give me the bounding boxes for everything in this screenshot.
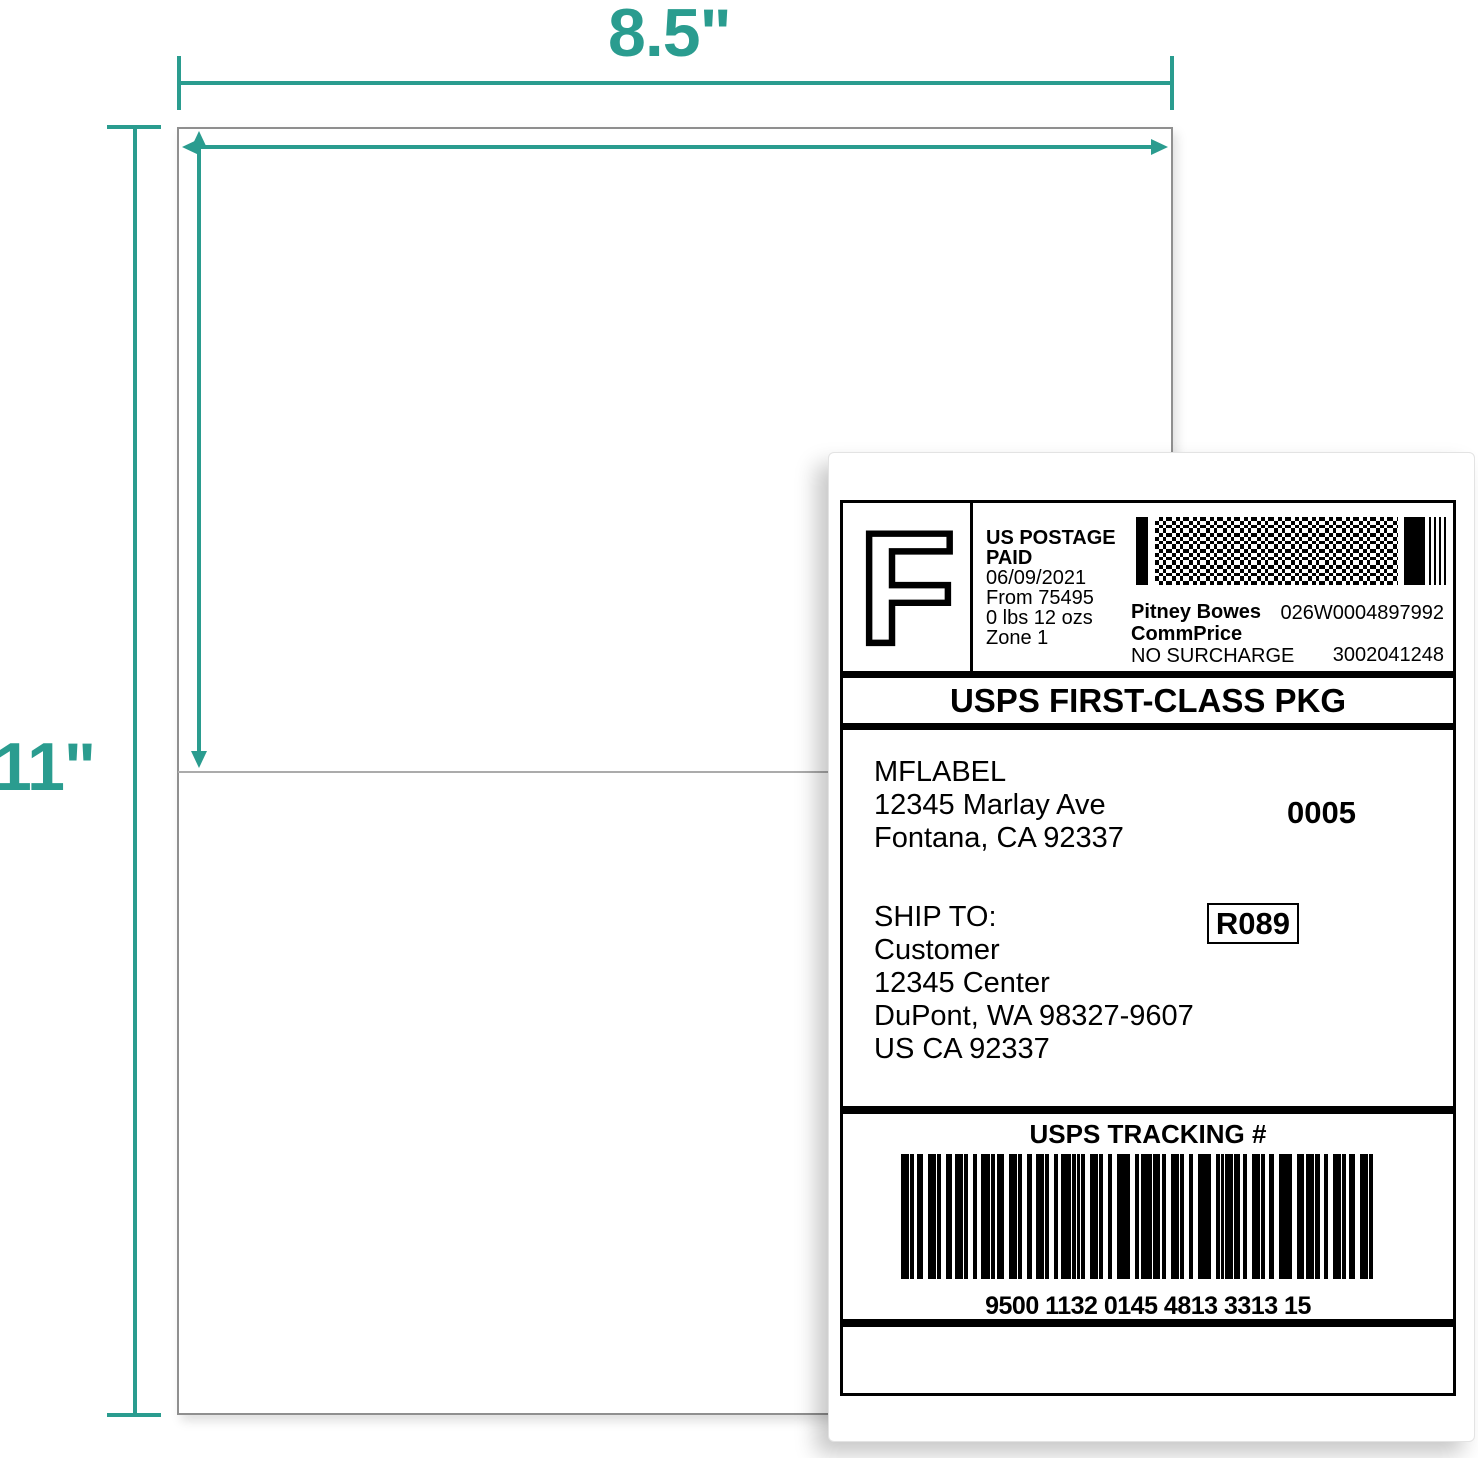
shipping-label: F US POSTAGE PAID 06/09/2021 From 75495 … [840,500,1456,1396]
destination-address: SHIP TO: Customer 12345 Center DuPont, W… [874,901,1194,1066]
dimension-line-width-outer [177,81,1174,85]
destination-city: DuPont, WA 98327-9607 [874,1000,1194,1033]
postage-paid-line1: US POSTAGE [986,528,1116,548]
shipping-label-card: F US POSTAGE PAID 06/09/2021 From 75495 … [828,452,1475,1442]
barcode-noise [1155,517,1398,585]
dimension-line-full-height [133,127,137,1415]
service-banner: USPS FIRST-CLASS PKG [843,678,1453,730]
address-section: MFLABEL 12345 Marlay Ave Fontana, CA 923… [843,730,1453,1106]
indicia-letter-text: F [859,521,955,654]
routing-code-badge: R089 [1207,903,1299,944]
tracking-barcode-icon [901,1154,1376,1279]
return-name: MFLABEL [874,756,1124,789]
ship-to-heading: SHIP TO: [874,901,1194,934]
postage-weight: 0 lbs 12 ozs [986,608,1116,628]
return-address: MFLABEL 12345 Marlay Ave Fontana, CA 923… [874,756,1124,855]
postage-ids-block: 026W0004897992 3002041248 [1281,602,1444,666]
return-street: 12345 Marlay Ave [874,789,1124,822]
arrowhead-down-icon [191,751,207,768]
dimension-label-full-height: 11" [0,736,95,798]
postage-vendor: Pitney Bowes [1131,601,1294,623]
tracking-section: USPS TRACKING # 9500 1132 0145 4813 3313… [843,1106,1453,1327]
postage-origin-zip: From 75495 [986,588,1116,608]
tracking-number: 9500 1132 0145 4813 3313 15 [843,1292,1453,1321]
destination-country: US CA 92337 [874,1033,1194,1066]
destination-name: Customer [874,934,1194,967]
dimension-arrow-width-inner [182,139,1168,155]
postage-section: F US POSTAGE PAID 06/09/2021 From 75495 … [843,503,1453,678]
label-sequence-number: 0005 [1287,796,1356,829]
postage-indicia-letter: F [859,521,955,654]
return-city: Fontana, CA 92337 [874,822,1124,855]
postage-vendor-block: Pitney Bowes CommPrice NO SURCHARGE [1131,601,1294,667]
arrow-line [195,145,1155,149]
postage-details-cell: US POSTAGE PAID 06/09/2021 From 75495 0 … [973,503,1453,671]
barcode-lines [1429,517,1446,585]
dimension-arrow-half-height [191,131,207,768]
postage-paid-block: US POSTAGE PAID 06/09/2021 From 75495 0 … [986,528,1116,648]
postage-date: 06/09/2021 [986,568,1116,588]
dimension-label-width-outer: 8.5" [608,2,731,64]
arrowhead-right-icon [1151,139,1168,155]
postage-meter-id: 026W0004897992 [1281,602,1444,624]
label-footer-blank [843,1327,1453,1393]
destination-street: 12345 Center [874,967,1194,1000]
postage-rate-type: CommPrice [1131,623,1294,645]
postage-zone: Zone 1 [986,628,1116,648]
arrow-line [197,144,201,755]
half-sheet-label-diagram: 8.5" 11" 8.5" 5.5" F [0,0,1478,1458]
postage-paid-line2: PAID [986,548,1116,568]
tracking-heading: USPS TRACKING # [843,1119,1453,1150]
barcode-bar [1404,517,1425,585]
postage-indicia: F [843,503,973,671]
postage-2d-barcode-icon [1136,517,1446,585]
barcode-bar [1136,517,1148,585]
postage-surcharge: NO SURCHARGE [1131,645,1294,667]
postage-account-id: 3002041248 [1281,644,1444,666]
